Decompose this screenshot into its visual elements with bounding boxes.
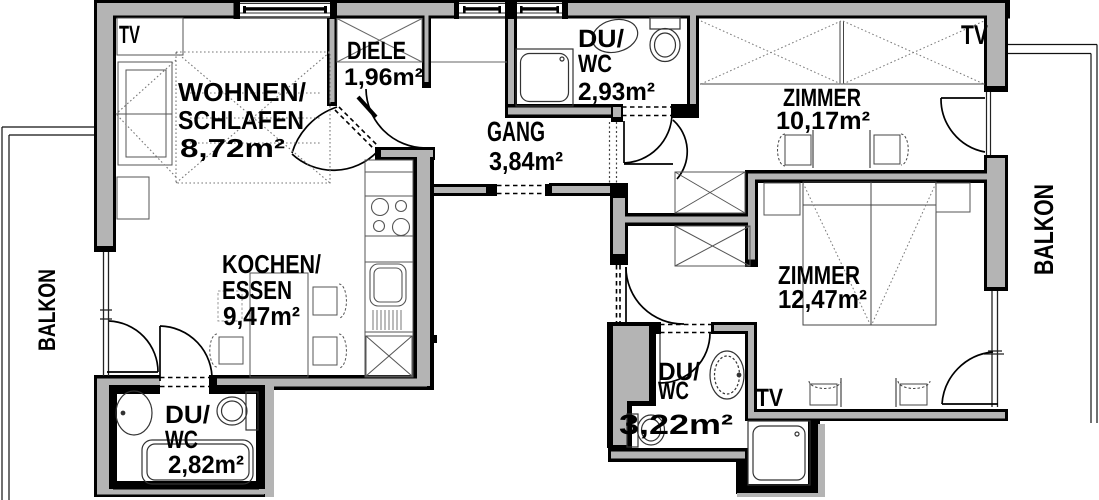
svg-text:BALKON: BALKON — [34, 269, 61, 351]
svg-text:TV: TV — [961, 20, 988, 50]
svg-text:WC: WC — [578, 50, 612, 78]
svg-text:10,17m²: 10,17m² — [776, 107, 870, 135]
svg-text:1,96m²: 1,96m² — [344, 64, 423, 91]
svg-text:TV: TV — [119, 21, 140, 49]
svg-text:DU/: DU/ — [578, 25, 624, 53]
svg-text:12,47m²: 12,47m² — [778, 284, 867, 314]
svg-text:3,84m²: 3,84m² — [489, 146, 563, 176]
svg-text:DU/: DU/ — [165, 401, 210, 429]
svg-text:SCHLAFEN: SCHLAFEN — [178, 105, 304, 135]
svg-text:WOHNEN/: WOHNEN/ — [178, 77, 306, 107]
svg-text:3,22m²: 3,22m² — [619, 409, 733, 440]
svg-text:WC: WC — [658, 377, 689, 405]
svg-text:8,72m²: 8,72m² — [180, 133, 285, 163]
svg-text:2,93m²: 2,93m² — [578, 78, 655, 106]
svg-text:9,47m²: 9,47m² — [223, 301, 300, 331]
svg-text:GANG: GANG — [487, 116, 545, 147]
svg-text:DIELE: DIELE — [347, 37, 406, 65]
svg-text:TV: TV — [756, 384, 783, 412]
svg-text:BALKON: BALKON — [1029, 184, 1059, 275]
svg-text:2,82m²: 2,82m² — [168, 451, 244, 479]
svg-text:WC: WC — [165, 426, 198, 454]
